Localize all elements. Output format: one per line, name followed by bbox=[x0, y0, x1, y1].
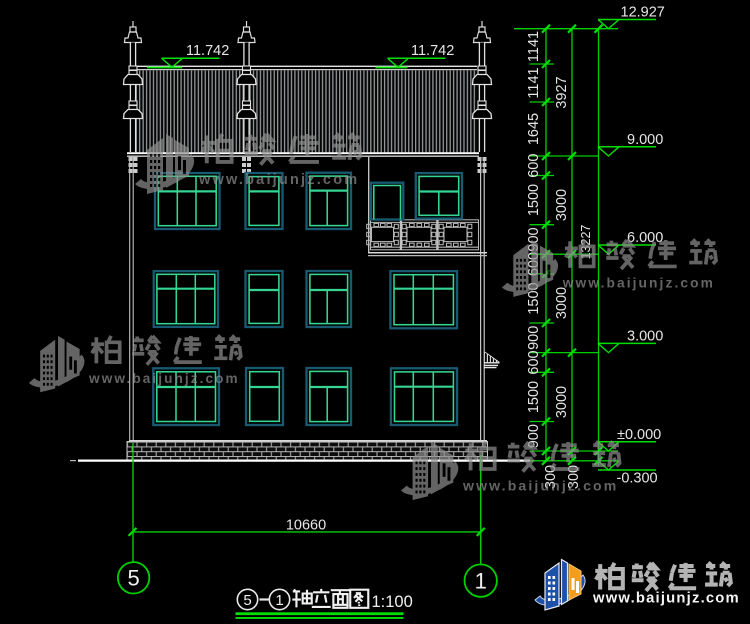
svg-text:3000: 3000 bbox=[554, 386, 570, 418]
svg-text:1500: 1500 bbox=[526, 184, 542, 216]
svg-text:1141: 1141 bbox=[526, 67, 542, 98]
svg-text:11.742: 11.742 bbox=[411, 43, 454, 59]
svg-text:10660: 10660 bbox=[286, 518, 326, 534]
svg-text:600: 600 bbox=[526, 154, 542, 178]
svg-text:1:100: 1:100 bbox=[372, 593, 413, 611]
svg-text:3000: 3000 bbox=[554, 189, 570, 221]
svg-text:5: 5 bbox=[127, 566, 139, 591]
svg-text:-0.300: -0.300 bbox=[617, 471, 658, 487]
svg-text:www.baijunjz.com: www.baijunjz.com bbox=[88, 371, 240, 386]
svg-text:3927: 3927 bbox=[554, 76, 570, 108]
svg-text:www.baijunjz.com: www.baijunjz.com bbox=[462, 477, 618, 493]
svg-text:www.baijunjz.com: www.baijunjz.com bbox=[198, 172, 359, 188]
svg-text:3.000: 3.000 bbox=[627, 328, 663, 344]
svg-text:www.baijunjz.com: www.baijunjz.com bbox=[562, 275, 715, 290]
svg-text:±0.000: ±0.000 bbox=[617, 427, 661, 443]
svg-text:1141: 1141 bbox=[526, 31, 542, 62]
svg-text:12.927: 12.927 bbox=[621, 5, 665, 21]
svg-text:1: 1 bbox=[475, 568, 487, 593]
svg-text:1: 1 bbox=[275, 592, 283, 609]
svg-text:3000: 3000 bbox=[554, 287, 570, 319]
svg-text:9.000: 9.000 bbox=[627, 132, 663, 148]
svg-text:1500: 1500 bbox=[526, 381, 542, 413]
svg-text:5: 5 bbox=[243, 592, 251, 609]
svg-text:www.baijunjz.com: www.baijunjz.com bbox=[592, 591, 740, 607]
svg-text:900: 900 bbox=[526, 326, 542, 350]
svg-text:1645: 1645 bbox=[526, 113, 542, 145]
svg-text:600: 600 bbox=[526, 350, 542, 374]
svg-text:11.742: 11.742 bbox=[186, 43, 229, 59]
